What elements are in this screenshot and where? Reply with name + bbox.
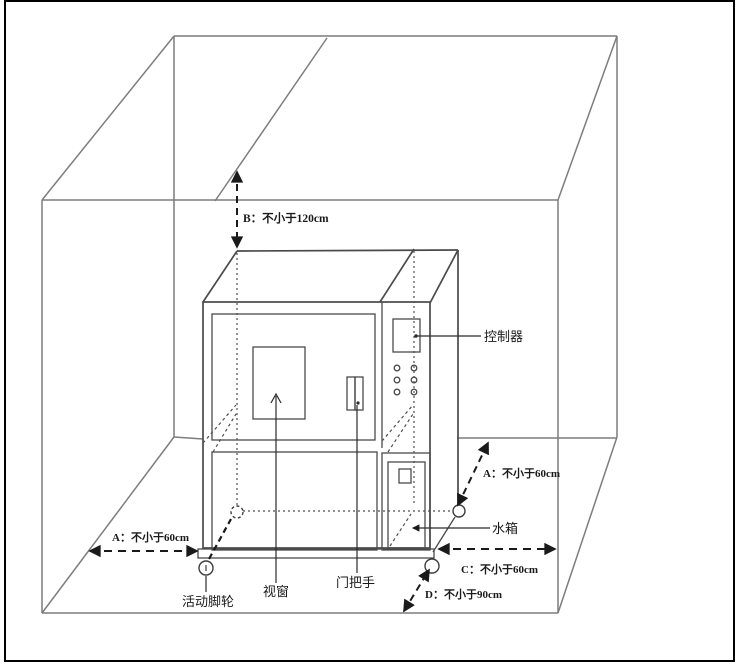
caster-back-left-hidden: [231, 506, 243, 518]
door-handle-rect: [347, 377, 363, 410]
window-leader: [271, 394, 281, 583]
panel-buttons: [394, 365, 417, 395]
water-tank-panel: [382, 453, 430, 550]
viewing-window-rect: [253, 347, 305, 419]
figure-frame-border: [5, 1, 734, 661]
label-door-handle: 门把手: [336, 575, 375, 590]
label-dim-a-right: A：不小于60cm: [483, 466, 560, 480]
label-dim-d: D：不小于90cm: [425, 587, 502, 601]
installation-clearance-diagram: B：不小于120cm A：不小于60cm A：不小于60cm C：不小于60cm…: [0, 0, 739, 666]
label-dim-a-left: A：不小于60cm: [112, 530, 189, 544]
label-controller: 控制器: [484, 329, 523, 344]
caster-back-right: [453, 505, 465, 517]
lower-front-panel: [212, 452, 377, 550]
room-wireframe: [42, 36, 617, 613]
label-casters: 活动脚轮: [182, 594, 234, 609]
floor-back-edge-left-segment: [174, 437, 203, 439]
leader-lines: [206, 334, 490, 592]
hidden-edges: [203, 251, 452, 546]
label-dim-c: C：不小于60cm: [461, 562, 538, 576]
dimension-arrows: [90, 172, 555, 611]
water-tank-gauge: [399, 469, 411, 483]
label-viewing-window: 视窗: [263, 584, 289, 599]
controller-leader: [414, 334, 481, 337]
ceiling-line-above-machine: [215, 38, 327, 201]
control-panel: [393, 319, 420, 395]
caster-front-right: [425, 559, 439, 573]
label-water-tank: 水箱: [492, 521, 518, 536]
test-chamber-machine: [198, 249, 465, 575]
machine-top-face: [203, 249, 458, 303]
label-dim-b: B：不小于120cm: [243, 211, 329, 225]
base-right-edge: [433, 517, 455, 552]
diagram-canvas: B：不小于120cm A：不小于60cm A：不小于60cm C：不小于60cm…: [0, 0, 739, 666]
